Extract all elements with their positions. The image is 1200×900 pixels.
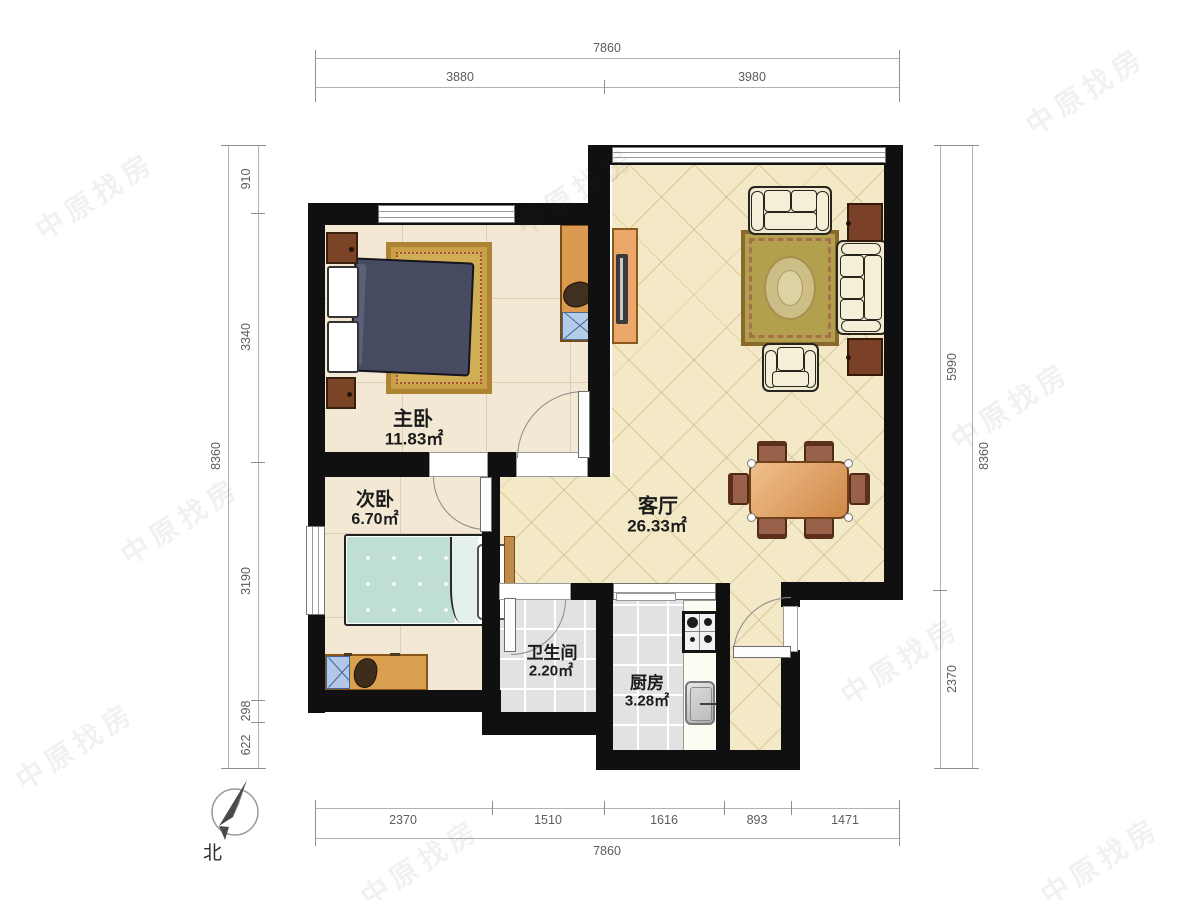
master-bed-pillow-top <box>327 266 359 318</box>
watermark: 中原找房 <box>942 351 1078 459</box>
sofa-loveseat <box>748 186 832 235</box>
dim-line-top-total <box>315 58 900 59</box>
dim-left-seg-4: 298 <box>239 701 253 722</box>
table-corner-dot <box>844 513 853 522</box>
side-table-top <box>847 203 883 242</box>
label-living-room-area: 26.33㎡ <box>627 512 687 537</box>
label-bathroom-area: 2.20㎡ <box>529 660 573 681</box>
table-corner-dot <box>844 459 853 468</box>
armchair <box>762 343 819 392</box>
nightstand-knob <box>347 392 352 397</box>
dim-line-left-segments <box>258 145 259 768</box>
kitchen-sliding-door <box>613 583 716 600</box>
table-corner-dot <box>747 513 756 522</box>
tv-screen-line <box>620 258 623 320</box>
watermark: 中原找房 <box>1017 36 1153 144</box>
living-room-window <box>612 147 886 163</box>
dim-right-seg-2: 2370 <box>945 665 959 693</box>
compass-north-label: 北 <box>203 838 222 865</box>
side-table-bottom <box>847 338 883 376</box>
sofa-back <box>772 371 809 387</box>
sofa-arm <box>816 191 829 231</box>
dim-tick <box>934 145 979 146</box>
sofa-back <box>864 255 882 320</box>
dining-chair <box>849 473 870 505</box>
stove-grid <box>685 631 715 632</box>
sofa-cushion <box>791 190 817 212</box>
second-bed-blanket <box>347 537 455 623</box>
dim-left-total: 8360 <box>209 442 223 470</box>
north-arrow-icon <box>203 776 267 842</box>
dim-tick <box>221 145 266 146</box>
watermark: 中原找房 <box>1032 806 1168 900</box>
watermark: 中原找房 <box>832 606 968 714</box>
dim-tick <box>251 700 265 701</box>
wall-second-bottom <box>308 690 501 712</box>
sofa-arm <box>751 191 764 231</box>
nightstand-top <box>326 232 358 264</box>
watermark: 中原找房 <box>7 691 143 799</box>
floor-plan: 主卧 11.83㎡ 次卧 6.70㎡ 客厅 26.33㎡ 卫生间 2.20㎡ 厨… <box>0 0 1200 900</box>
wall-kitchen-right <box>716 583 730 753</box>
dim-tick <box>315 800 316 846</box>
sofa-cushion <box>840 299 864 320</box>
wall-kitchen-bottom <box>596 750 800 770</box>
dim-line-top-segments <box>315 87 900 88</box>
dim-tick <box>221 768 266 769</box>
second-bed-frame <box>344 534 493 626</box>
sofa-cushion <box>840 255 864 277</box>
master-door-leaf <box>578 391 590 458</box>
dim-bottom-seg-1: 2370 <box>389 813 417 827</box>
sofa-seat <box>764 212 817 230</box>
label-master-bedroom-area: 11.83㎡ <box>385 425 444 450</box>
second-bed-sheet-fold <box>450 537 478 623</box>
stove-burner <box>704 635 712 643</box>
second-bedroom-window <box>306 526 325 615</box>
master-bedroom-window <box>378 205 515 223</box>
stove-burner <box>687 617 698 628</box>
master-bed-pillow-bottom <box>327 321 359 373</box>
dim-tick <box>604 80 605 94</box>
dim-top-total: 7860 <box>593 41 621 55</box>
sofa-arm <box>841 320 881 332</box>
sofa-cushion <box>777 347 804 371</box>
label-kitchen-area: 3.28㎡ <box>625 690 669 711</box>
dim-line-left-total <box>228 145 229 768</box>
dining-table <box>749 461 849 519</box>
dim-right-seg-1: 5990 <box>945 353 959 381</box>
sofa-three-seat <box>836 240 888 335</box>
nightstand-knob <box>349 247 354 252</box>
dim-line-bottom-segments <box>315 808 900 809</box>
dim-left-seg-5: 622 <box>239 735 253 756</box>
sofa-cushion <box>840 277 864 299</box>
dim-tick <box>724 801 725 815</box>
dim-bottom-total: 7860 <box>593 844 621 858</box>
wall-living-right <box>884 145 903 600</box>
gas-stove <box>682 611 718 653</box>
dim-tick <box>934 768 979 769</box>
dim-left-seg-1: 910 <box>239 169 253 190</box>
sofa-arm <box>841 243 881 255</box>
dim-tick <box>492 801 493 815</box>
dim-top-seg-2: 3980 <box>738 70 766 84</box>
dim-left-seg-3: 3190 <box>239 567 253 595</box>
dim-bottom-seg-3: 1616 <box>650 813 678 827</box>
wall-bathroom-bottom <box>482 712 613 735</box>
tv <box>616 254 628 324</box>
dim-tick <box>251 722 265 723</box>
dining-chair <box>757 441 787 463</box>
side-table-knob <box>846 221 851 226</box>
second-door-leaf <box>480 477 492 532</box>
watermark: 中原找房 <box>27 141 163 249</box>
dim-tick <box>251 213 265 214</box>
dining-chair <box>804 441 834 463</box>
dim-line-right-segments <box>940 145 941 768</box>
dim-bottom-seg-5: 1471 <box>831 813 859 827</box>
dim-bottom-seg-2: 1510 <box>534 813 562 827</box>
nightstand-bottom <box>326 377 356 409</box>
sliding-door-panel <box>616 593 676 601</box>
watermark: 中原找房 <box>352 808 488 900</box>
living-rug <box>741 230 839 346</box>
master-bed-duvet <box>350 257 475 376</box>
dining-chair <box>757 517 787 539</box>
label-second-bedroom-area: 6.70㎡ <box>351 505 398 529</box>
kitchen-sink <box>685 681 715 725</box>
second-pc <box>326 656 350 689</box>
dim-tick <box>604 801 605 815</box>
desk-item <box>390 653 400 656</box>
dim-tick <box>899 800 900 846</box>
dim-tick <box>791 801 792 815</box>
stove-burner <box>690 637 695 642</box>
dim-line-bottom-total <box>315 838 900 839</box>
stove-grid <box>699 614 700 650</box>
dim-left-seg-2: 3340 <box>239 323 253 351</box>
entry-door-leaf <box>733 646 791 658</box>
stove-burner <box>704 618 712 626</box>
dim-line-right-total <box>972 145 973 768</box>
side-table-knob <box>846 355 851 360</box>
dining-chair <box>728 473 749 505</box>
dim-tick <box>315 50 316 102</box>
dim-tick <box>899 50 900 102</box>
living-rug-medallion-center <box>777 270 803 306</box>
dining-chair <box>804 517 834 539</box>
sofa-cushion <box>764 190 791 212</box>
dim-tick <box>251 462 265 463</box>
dim-bottom-seg-4: 893 <box>747 813 768 827</box>
second-door-frame <box>429 452 488 477</box>
table-corner-dot <box>747 459 756 468</box>
bathroom-door-leaf <box>504 598 516 652</box>
dim-tick <box>933 590 947 591</box>
compass: 北 <box>203 776 267 866</box>
dim-top-seg-1: 3880 <box>446 70 474 84</box>
